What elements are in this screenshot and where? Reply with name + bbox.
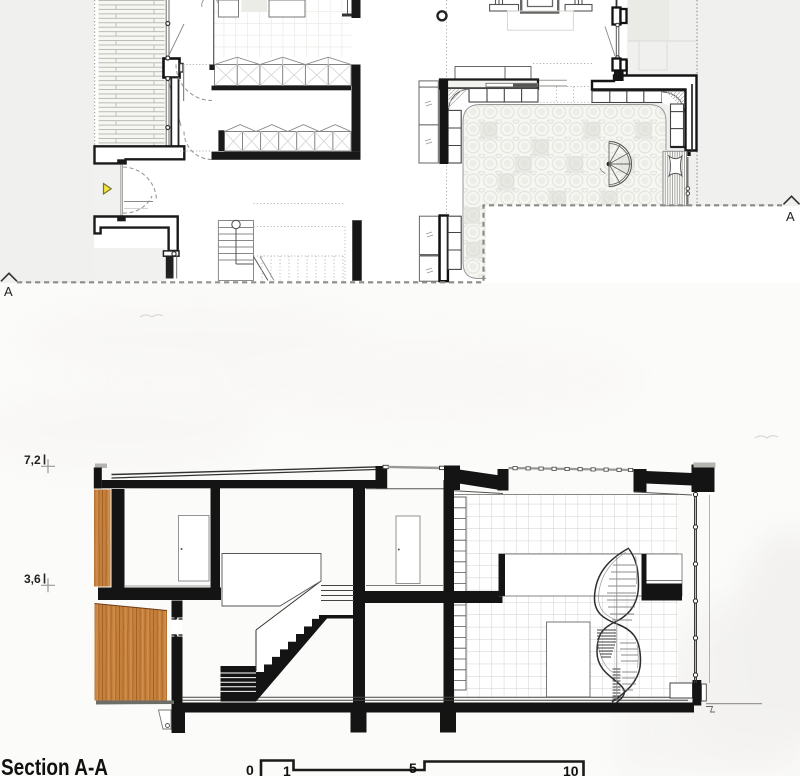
svg-text:7,2: 7,2 — [24, 453, 41, 467]
svg-text:A: A — [786, 209, 795, 224]
svg-text:A: A — [4, 284, 13, 299]
svg-text:3,6: 3,6 — [24, 572, 41, 586]
svg-text:5: 5 — [409, 760, 417, 776]
svg-text:10: 10 — [563, 763, 579, 776]
svg-text:Section A-A: Section A-A — [1, 754, 108, 776]
svg-text:0: 0 — [246, 762, 254, 776]
svg-text:1: 1 — [283, 763, 291, 776]
